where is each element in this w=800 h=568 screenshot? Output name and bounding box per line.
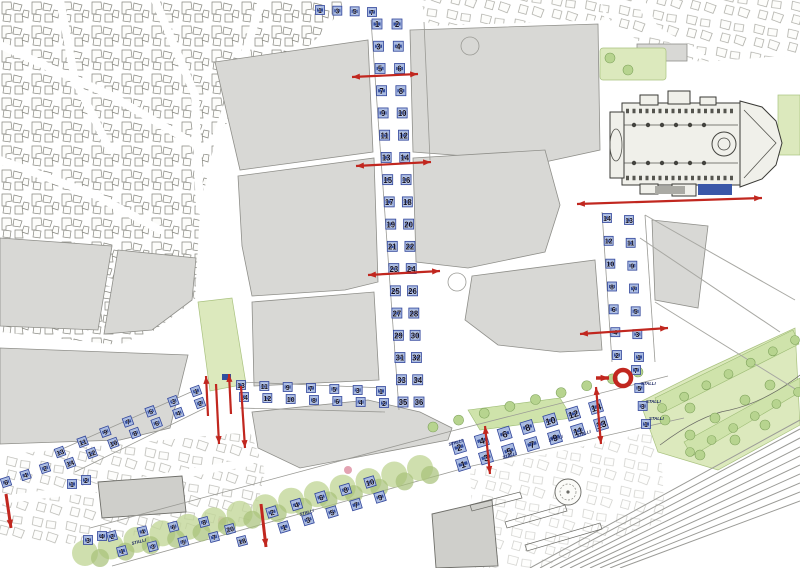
parking-stall: 7: [307, 384, 316, 393]
stall-number: 10: [606, 262, 614, 269]
parking-stall: 1: [316, 6, 325, 15]
tree-icon: [582, 381, 592, 391]
stall-number: 16: [402, 176, 411, 185]
stall-number: 7: [309, 386, 313, 393]
tree-icon: [421, 466, 439, 484]
parking-stall: 1: [372, 19, 382, 29]
tree-icon: [680, 392, 689, 401]
stall-number: 17: [385, 198, 394, 207]
stall-number: 25: [391, 287, 400, 296]
stall-number: 33: [397, 376, 406, 385]
stall-number: 11: [627, 241, 635, 248]
parking-stall: 8: [310, 396, 319, 405]
tree-icon: [556, 388, 566, 398]
tree-icon: [750, 412, 759, 421]
parking-stall: 11: [260, 382, 269, 391]
parking-stall: 29: [393, 330, 403, 340]
stall-number: 11: [381, 131, 390, 140]
stall-number: 7: [632, 286, 636, 293]
stall-number: 7: [379, 87, 383, 96]
stall-number: 3: [356, 388, 360, 395]
tree-icon: [685, 430, 695, 440]
stall-number: 12: [263, 396, 271, 403]
tree-icon: [91, 549, 109, 567]
parking-stall: 13: [625, 216, 634, 225]
tree-icon: [396, 472, 414, 490]
tree-icon: [765, 380, 775, 390]
stall-number: 9: [630, 264, 634, 271]
stall-number: 5: [353, 9, 357, 16]
stall-number: 4: [100, 534, 104, 541]
stall-number: 15: [383, 176, 392, 185]
parking-stall: 36: [414, 397, 424, 407]
tree-icon: [243, 511, 261, 529]
city-parking-map: 1357135791113151719212325272931333524681…: [0, 0, 800, 568]
stall-number: 12: [605, 239, 613, 246]
parking-stall: 4: [98, 532, 107, 541]
parking-stall: 13: [381, 152, 391, 162]
parking-stall: 11: [626, 238, 635, 247]
stall-number: 6: [397, 65, 402, 74]
tree-icon: [695, 450, 705, 460]
parking-stall: 3: [333, 6, 342, 15]
stall-number: 8: [399, 87, 404, 96]
parking-stall: 15: [383, 175, 393, 185]
tree-icon: [746, 358, 755, 367]
stall-number: 1: [644, 422, 648, 429]
parking-stall: 18: [402, 197, 412, 207]
parking-stall: 12: [604, 236, 613, 245]
parking-stall: 10: [286, 395, 295, 404]
stall-number: 5: [378, 65, 383, 74]
parking-stall: 25: [390, 286, 400, 296]
tree-icon: [623, 65, 633, 75]
stall-number: 3: [335, 9, 339, 16]
parking-stall: 3: [84, 536, 93, 545]
stall-number: 35: [399, 398, 408, 407]
stall-number: 14: [603, 216, 611, 223]
parking-stall: 12: [263, 394, 272, 403]
stall-number: 19: [386, 220, 395, 229]
parking-stall: 2: [82, 476, 91, 485]
stall-number: 29: [394, 331, 403, 340]
tree-icon: [791, 336, 800, 345]
stall-number: 3: [635, 332, 639, 339]
parking-stall: 5: [631, 307, 640, 316]
tree-icon: [505, 401, 515, 411]
stall-number: 13: [625, 218, 633, 225]
parking-stall: 9: [283, 383, 292, 392]
parking-stall: 1: [68, 480, 77, 489]
parking-stall: 14: [603, 214, 612, 223]
parking-stall: 9: [628, 261, 637, 270]
tree-icon: [730, 435, 740, 445]
parking-stall: 21: [387, 241, 397, 251]
parking-stall: 6: [395, 63, 405, 73]
stall-number: 6: [612, 307, 616, 314]
tree-icon: [685, 403, 695, 413]
stall-number: 3: [376, 42, 381, 51]
parking-stall: 6: [609, 305, 618, 314]
parking-stall: 5: [330, 385, 339, 394]
parking-stall: 28: [409, 308, 419, 318]
parking-stall: 16: [401, 175, 411, 185]
stall-number: 34: [413, 376, 422, 385]
tree-icon: [710, 413, 720, 423]
parking-stall: 7: [632, 366, 641, 375]
tree-icon: [531, 395, 541, 405]
parking-stall: 7: [630, 284, 639, 293]
tree-icon: [768, 347, 777, 356]
monument-circle: [555, 479, 581, 505]
stall-number: 8: [312, 398, 316, 405]
tree-icon: [724, 370, 733, 379]
stall-number: 3: [641, 404, 645, 411]
parking-stall: 22: [405, 241, 415, 251]
parking-stall: 10: [397, 108, 407, 118]
parking-stall: 4: [393, 41, 403, 51]
parking-stall: 35: [398, 397, 408, 407]
stall-number: 36: [415, 398, 424, 407]
parking-stall: 27: [392, 308, 402, 318]
tree-icon: [729, 424, 738, 433]
parking-stall: 8: [396, 86, 406, 96]
parking-stall: 5: [350, 7, 359, 16]
stall-number: 22: [406, 243, 415, 252]
cathedral-plan: [610, 91, 782, 196]
parking-stall: 9: [378, 108, 388, 118]
parking-stall: 3: [353, 386, 362, 395]
tree-icon: [454, 415, 464, 425]
stall-number: 6: [335, 399, 339, 406]
parking-stall: 30: [410, 330, 420, 340]
stall-number: 5: [637, 386, 641, 393]
stall-number: 21: [388, 243, 397, 252]
parking-stall: 10: [606, 259, 615, 268]
stall-number: 5: [634, 309, 638, 316]
parking-stall: 17: [384, 197, 394, 207]
parking-stall: 23: [389, 264, 399, 274]
tree-icon: [605, 53, 615, 63]
parking-stall: 33: [396, 375, 406, 385]
parking-stall: 8: [608, 282, 617, 291]
stall-number: 30: [411, 331, 420, 340]
stall-number: 3: [86, 538, 90, 545]
parking-stall: 2: [392, 19, 402, 29]
stall-number: 2: [395, 20, 400, 29]
parking-stall: 6: [333, 397, 342, 406]
stall-number: 1: [375, 20, 380, 29]
stall-number: 8: [610, 284, 614, 291]
stall-number: 14: [400, 154, 409, 163]
parking-stall: 7: [368, 8, 377, 17]
parking-stall: 32: [411, 353, 421, 363]
stall-number: 1: [379, 389, 383, 396]
stalli-label: STALLI: [641, 381, 657, 386]
stall-number: 20: [404, 220, 413, 229]
stall-number: 4: [396, 42, 401, 51]
parking-stall: 1: [377, 387, 386, 396]
stall-number: 5: [332, 387, 336, 394]
tree-icon: [702, 381, 711, 390]
stall-number: 10: [287, 397, 295, 404]
stall-number: 10: [398, 109, 407, 118]
map-viewport: { "map": { "description": "urban parking…: [0, 0, 800, 568]
parking-stall: 19: [386, 219, 396, 229]
tree-icon: [658, 404, 667, 413]
stall-number: 1: [318, 8, 322, 15]
stall-number: 32: [412, 354, 421, 363]
tree-icon: [760, 420, 770, 430]
stall-number: 31: [396, 354, 405, 363]
tree-icon: [479, 408, 489, 418]
tree-icon: [428, 422, 438, 432]
parking-stall: 34: [413, 375, 423, 385]
stall-number: 27: [393, 309, 402, 318]
stall-number: 13: [382, 154, 391, 163]
parking-stall: 7: [377, 86, 387, 96]
stall-number: 7: [634, 368, 638, 375]
parking-stall: 26: [408, 286, 418, 296]
stall-number: 2: [615, 353, 619, 360]
stall-number: 1: [637, 355, 641, 362]
stalli-label: STALLI: [646, 399, 662, 404]
tree-icon: [740, 395, 750, 405]
parking-stall: 5: [375, 63, 385, 73]
stall-number: 12: [399, 131, 408, 140]
stall-number: 9: [286, 385, 290, 392]
stall-number: 28: [409, 309, 418, 318]
parking-stall: 31: [395, 353, 405, 363]
stall-number: 18: [403, 198, 412, 207]
stall-number: 26: [408, 287, 417, 296]
parking-stall: 1: [635, 353, 644, 362]
stall-number: 1: [70, 482, 74, 489]
parking-stall: 2: [613, 351, 622, 360]
parking-stall: 4: [356, 398, 365, 407]
parking-stall: 2: [380, 399, 389, 408]
parking-stall: 12: [398, 130, 408, 140]
parking-stall: 3: [374, 41, 384, 51]
tree-icon: [686, 448, 695, 457]
stall-number: 11: [261, 384, 269, 391]
tree-icon: [772, 400, 781, 409]
tree-icon: [794, 388, 800, 397]
stall-number: 2: [382, 401, 386, 408]
stall-number: 2: [84, 478, 88, 485]
stalli-label: STALLI: [649, 416, 665, 421]
stall-number: 4: [359, 400, 363, 407]
stall-number: 9: [381, 109, 386, 118]
parking-stall: 20: [404, 219, 414, 229]
stall-number: 7: [370, 10, 374, 17]
tree-icon: [707, 436, 716, 445]
parking-stall: 14: [400, 152, 410, 162]
parking-stall: 11: [380, 130, 390, 140]
